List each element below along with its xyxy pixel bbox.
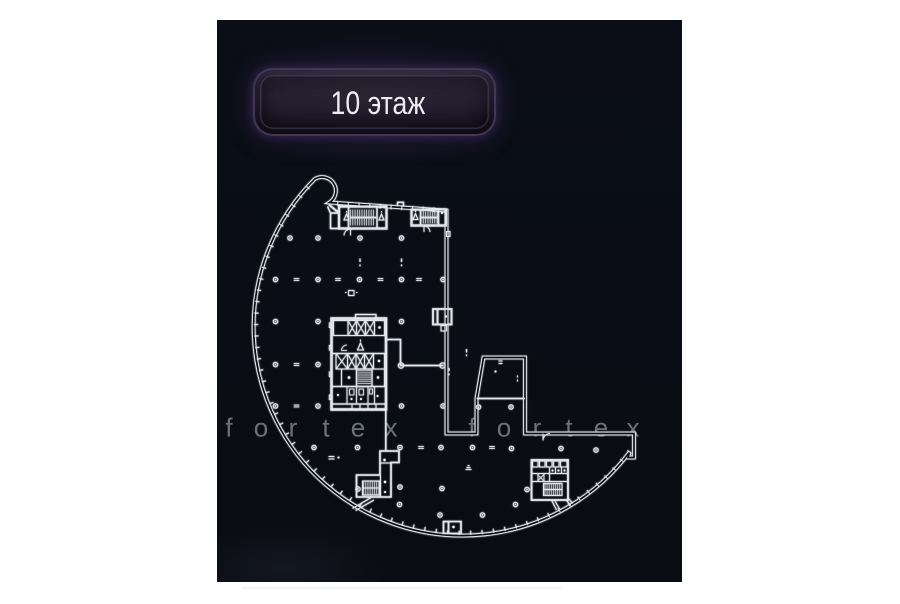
svg-text:fortex: fortex <box>225 413 397 443</box>
svg-text:fortex: fortex <box>468 413 639 443</box>
